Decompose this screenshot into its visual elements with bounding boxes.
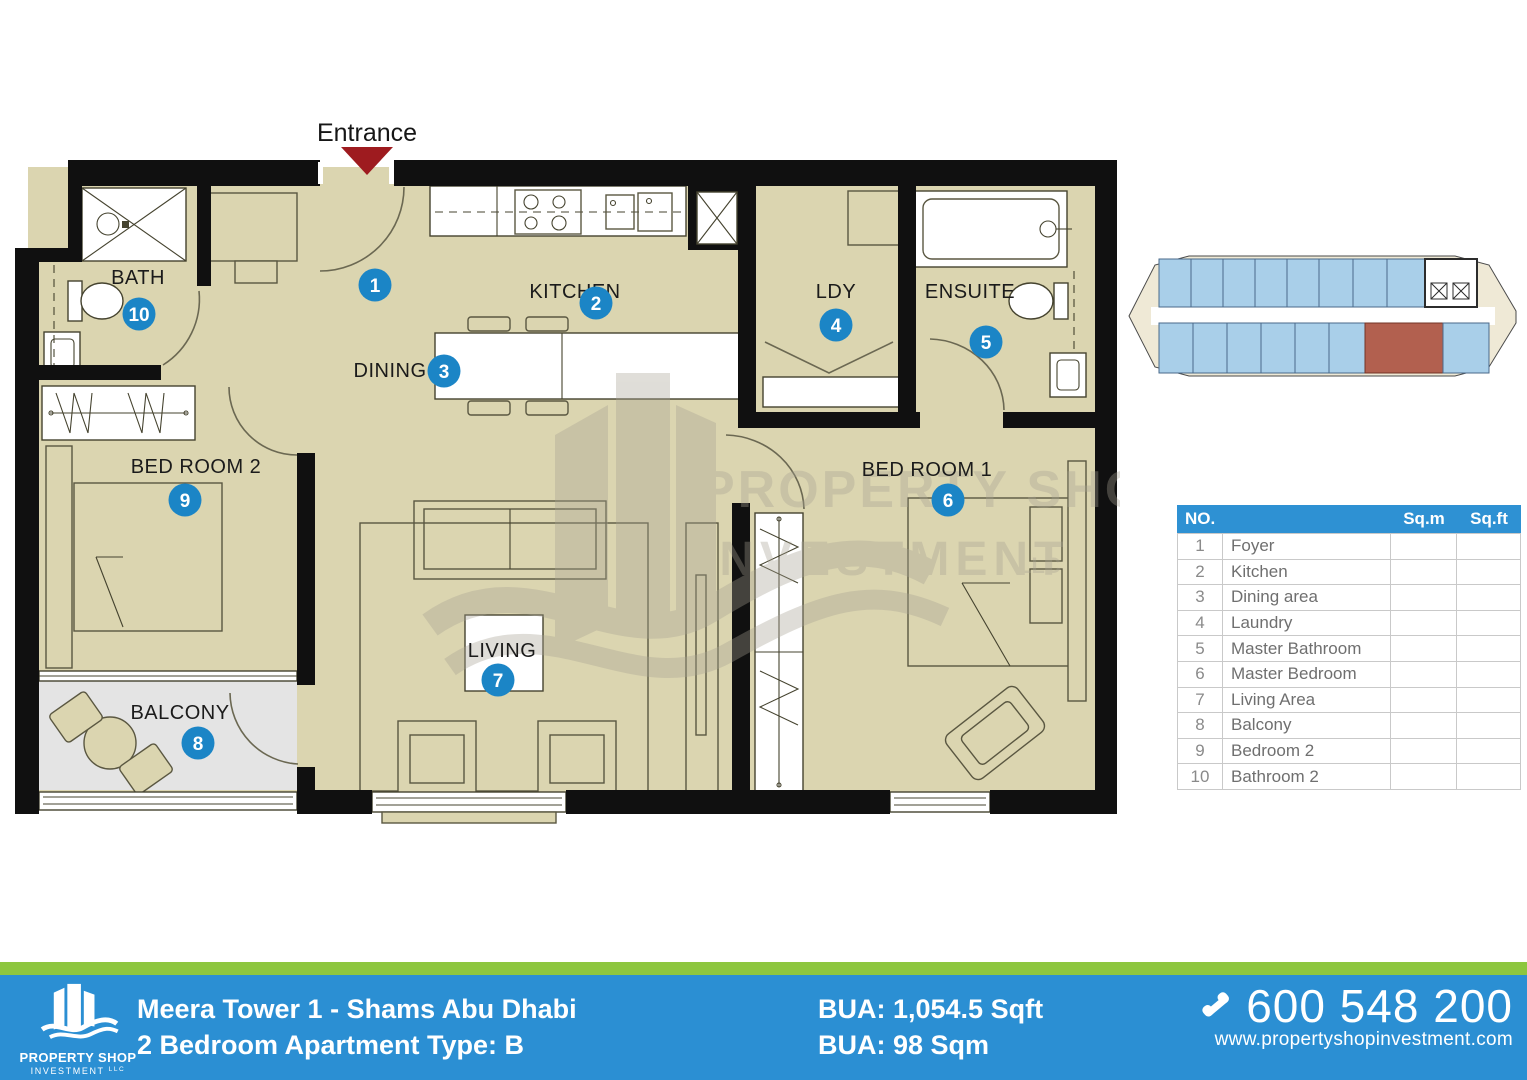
- marker-laundry: 4: [820, 309, 853, 342]
- entrance-label: Entrance: [317, 119, 417, 147]
- table-cell-sqm: [1390, 560, 1456, 585]
- svg-text:5: 5: [981, 333, 992, 354]
- table-row: 8Balcony: [1177, 712, 1521, 738]
- svg-text:4: 4: [831, 316, 842, 337]
- brand-logo: PROPERTY SHOP INVESTMENT LLC: [18, 981, 138, 1076]
- table-cell-sqm: [1390, 662, 1456, 687]
- marker-master-bathroom: 5: [970, 326, 1003, 359]
- watermark-suffix: LLC: [1018, 553, 1061, 578]
- table-row: 3Dining area: [1177, 584, 1521, 610]
- table-cell-sqft: [1456, 688, 1520, 713]
- highlighted-unit: [1365, 323, 1443, 373]
- svg-text:7: 7: [493, 671, 504, 692]
- table-row: 2Kitchen: [1177, 559, 1521, 585]
- marker-master-bedroom: 6: [932, 484, 965, 517]
- table-cell-sqft: [1456, 585, 1520, 610]
- label-living: LIVING: [468, 640, 537, 662]
- svg-text:6: 6: [943, 491, 954, 512]
- label-bedroom1: BED ROOM 1: [862, 459, 993, 481]
- table-cell-sqm: [1390, 636, 1456, 661]
- table-cell-no: 6: [1178, 662, 1222, 687]
- label-balcony: BALCONY: [130, 702, 229, 724]
- footer-contact: 600 548 200 www.propertyshopinvestment.c…: [1200, 981, 1513, 1051]
- table-cell-no: 1: [1178, 534, 1222, 559]
- label-ldy: LDY: [816, 281, 856, 303]
- watermark-line2: INVESTMENT: [700, 533, 1069, 586]
- table-cell-sqm: [1390, 688, 1456, 713]
- table-cell-name: Master Bathroom: [1222, 636, 1390, 661]
- marker-balcony: 8: [182, 727, 215, 760]
- corridor: [1151, 307, 1495, 325]
- table-cell-name: Foyer: [1222, 534, 1390, 559]
- floor-plan: PROPERTY SHOP INVESTMENT LLC Entrance BA…: [10, 105, 1120, 825]
- col-sqm: Sq.m: [1391, 509, 1457, 529]
- brand-sub-text: INVESTMENT: [31, 1066, 105, 1076]
- table-cell-name: Balcony: [1222, 713, 1390, 738]
- table-cell-name: Bathroom 2: [1222, 764, 1390, 789]
- phone-row: 600 548 200: [1200, 981, 1513, 1031]
- label-dining: DINING: [354, 360, 427, 382]
- table-cell-name: Living Area: [1222, 688, 1390, 713]
- table-cell-name: Bedroom 2: [1222, 739, 1390, 764]
- phone-number: 600 548 200: [1246, 981, 1513, 1031]
- table-row: 7Living Area: [1177, 687, 1521, 713]
- svg-text:3: 3: [439, 362, 450, 383]
- table-row: 6Master Bedroom: [1177, 661, 1521, 687]
- phone-icon: [1200, 989, 1234, 1023]
- table-cell-sqft: [1456, 636, 1520, 661]
- table-cell-name: Master Bedroom: [1222, 662, 1390, 687]
- units-lower: [1159, 323, 1489, 373]
- table-cell-sqft: [1456, 560, 1520, 585]
- svg-text:2: 2: [591, 294, 602, 315]
- svg-text:9: 9: [180, 491, 191, 512]
- table-cell-sqft: [1456, 739, 1520, 764]
- footer-bua: BUA: 1,054.5 Sqft BUA: 98 Sqm: [818, 991, 1043, 1063]
- table-cell-sqft: [1456, 764, 1520, 789]
- table-row: 9Bedroom 2: [1177, 738, 1521, 764]
- label-ensuite: ENSUITE: [925, 281, 1015, 303]
- table-cell-no: 9: [1178, 739, 1222, 764]
- flyer-canvas: PROPERTY SHOP INVESTMENT LLC Entrance BA…: [0, 0, 1527, 1080]
- table-cell-sqft: [1456, 611, 1520, 636]
- table-cell-no: 10: [1178, 764, 1222, 789]
- table-cell-no: 4: [1178, 611, 1222, 636]
- marker-bathroom2: 10: [123, 298, 156, 331]
- footer-green-stripe: [0, 962, 1527, 975]
- table-cell-no: 5: [1178, 636, 1222, 661]
- table-row: 10Bathroom 2: [1177, 763, 1521, 789]
- table-cell-sqft: [1456, 534, 1520, 559]
- brand-sub: INVESTMENT LLC: [18, 1066, 138, 1076]
- table-cell-sqm: [1390, 764, 1456, 789]
- footer: PROPERTY SHOP INVESTMENT LLC Meera Tower…: [0, 975, 1527, 1080]
- bua-sqm: BUA: 98 Sqm: [818, 1027, 1043, 1063]
- marker-foyer: 1: [359, 269, 392, 302]
- table-cell-no: 2: [1178, 560, 1222, 585]
- area-table: NO. Sq.m Sq.ft 1Foyer2Kitchen3Dining are…: [1177, 505, 1521, 790]
- table-cell-sqm: [1390, 739, 1456, 764]
- area-table-rows: 1Foyer2Kitchen3Dining area4Laundry5Maste…: [1177, 533, 1521, 790]
- bua-sqft: BUA: 1,054.5 Sqft: [818, 991, 1043, 1027]
- property-shop-logo-icon: [34, 981, 122, 1043]
- table-cell-name: Kitchen: [1222, 560, 1390, 585]
- bedroom2-furniture: [42, 386, 222, 668]
- unit-title: 2 Bedroom Apartment Type: B: [137, 1027, 577, 1063]
- table-cell-no: 7: [1178, 688, 1222, 713]
- table-row: 4Laundry: [1177, 610, 1521, 636]
- table-cell-sqm: [1390, 611, 1456, 636]
- marker-dining: 3: [428, 355, 461, 388]
- col-no: NO.: [1177, 509, 1221, 529]
- area-table-header: NO. Sq.m Sq.ft: [1177, 505, 1521, 533]
- table-row: 1Foyer: [1177, 533, 1521, 559]
- table-cell-sqm: [1390, 585, 1456, 610]
- footer-titles: Meera Tower 1 - Shams Abu Dhabi 2 Bedroo…: [137, 991, 577, 1063]
- table-cell-sqft: [1456, 713, 1520, 738]
- kitchen-fixtures: [430, 186, 686, 236]
- svg-text:1: 1: [370, 276, 381, 297]
- marker-bedroom2: 9: [169, 484, 202, 517]
- marker-kitchen: 2: [580, 287, 613, 320]
- label-bath: BATH: [111, 267, 165, 289]
- brand-name: PROPERTY SHOP: [18, 1050, 138, 1065]
- table-cell-no: 8: [1178, 713, 1222, 738]
- svg-text:8: 8: [193, 734, 204, 755]
- table-cell-sqft: [1456, 662, 1520, 687]
- label-bedroom2: BED ROOM 2: [131, 456, 262, 478]
- project-title: Meera Tower 1 - Shams Abu Dhabi: [137, 991, 577, 1027]
- table-cell-name: Laundry: [1222, 611, 1390, 636]
- table-cell-name: Dining area: [1222, 585, 1390, 610]
- col-sqft: Sq.ft: [1457, 509, 1521, 529]
- table-row: 5Master Bathroom: [1177, 635, 1521, 661]
- website-url: www.propertyshopinvestment.com: [1200, 1029, 1513, 1051]
- svg-text:10: 10: [128, 305, 149, 326]
- units-upper: [1159, 259, 1477, 307]
- table-cell-sqm: [1390, 713, 1456, 738]
- table-cell-sqm: [1390, 534, 1456, 559]
- marker-living: 7: [482, 664, 515, 697]
- building-floor-overview: [1125, 243, 1520, 388]
- brand-suffix: LLC: [109, 1066, 126, 1073]
- table-cell-no: 3: [1178, 585, 1222, 610]
